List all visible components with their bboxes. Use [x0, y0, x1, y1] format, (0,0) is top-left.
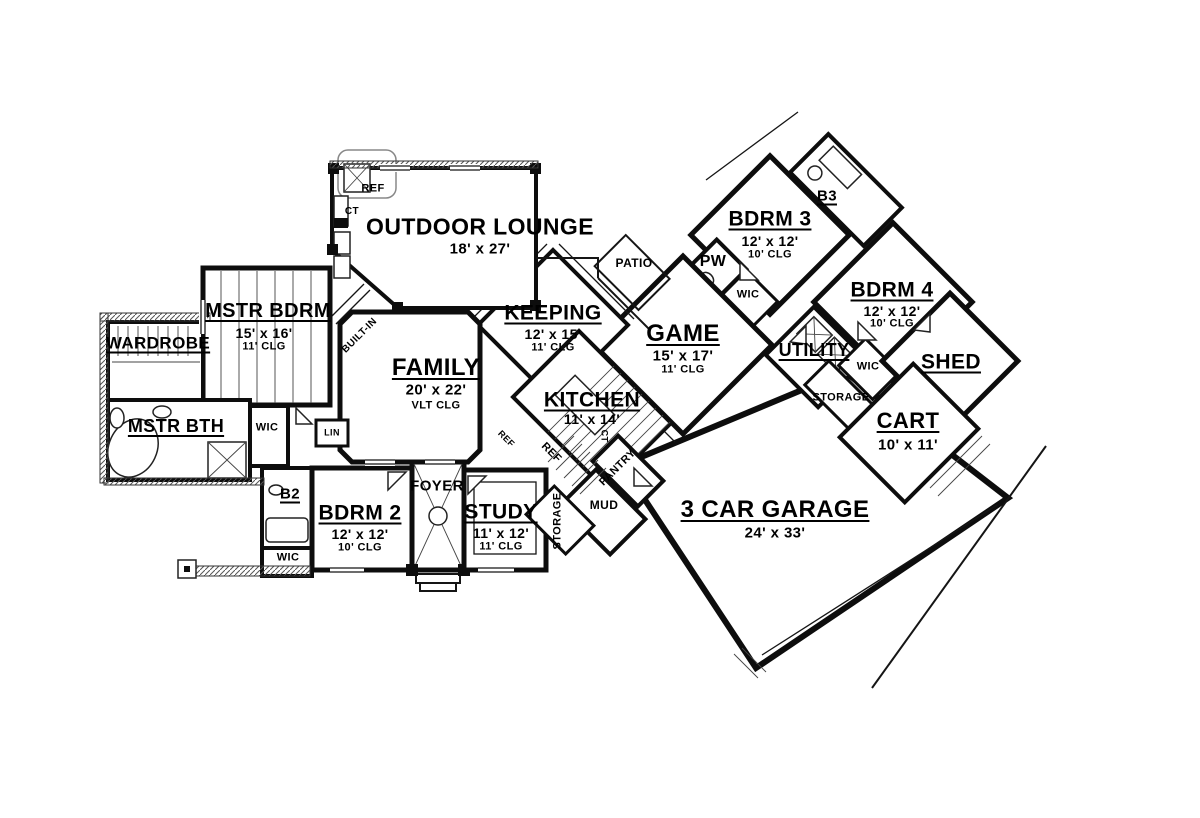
ct-label: CT — [345, 207, 359, 217]
toilet — [110, 408, 124, 428]
room-label-bdrm4: BDRM 4 — [851, 280, 934, 301]
room-label-bdrm3: BDRM 3 — [729, 209, 812, 230]
wic-label: WIC — [737, 290, 760, 301]
room-label-b3: B3 — [817, 189, 837, 204]
front-porch — [196, 566, 310, 576]
room-label-pw: PW — [700, 254, 727, 270]
front-steps — [416, 574, 460, 583]
room-label-outdoor-lounge: OUTDOOR LOUNGE — [366, 216, 594, 239]
room-label-family: FAMILY — [392, 356, 480, 380]
floor-plan: OUTDOOR LOUNGE 18' x 27' REF CT MSTR BDR… — [0, 0, 1200, 818]
ct-label: CT — [600, 430, 609, 443]
storage-label: STORAGE — [553, 493, 564, 550]
room-dims-study: 11' x 12' — [473, 526, 529, 540]
patio-label: PATIO — [616, 257, 653, 269]
wic-label: WIC — [256, 423, 279, 434]
room-label-mstr-bth: MSTR BTH — [128, 417, 224, 435]
room-label-garage: 3 CAR GARAGE — [681, 498, 870, 522]
room-dims-mstr-bdrm: 15' x 16' — [236, 326, 293, 340]
mud-label: MUD — [590, 499, 619, 511]
room-label-mstr-bdrm: MSTR BDRM — [205, 301, 331, 321]
room-label-wardrobe: WARDROBE — [106, 335, 210, 352]
room-clg-game: 11' CLG — [661, 365, 704, 376]
room-dims-bdrm2: 12' x 12' — [332, 527, 389, 541]
storage-label: STORAGE — [813, 393, 870, 404]
room-label-b2: B2 — [280, 487, 300, 502]
room-dims-bdrm3: 12' x 12' — [742, 234, 799, 248]
room-clg-keeping: 11' CLG — [531, 343, 574, 354]
room-clg-bdrm2: 10' CLG — [338, 543, 382, 554]
wic-label: WIC — [857, 362, 880, 373]
room-label-study: STUDY — [464, 502, 537, 523]
ref-label: REF — [361, 184, 384, 195]
room-clg-bdrm3: 10' CLG — [748, 250, 792, 261]
room-clg-study: 11' CLG — [479, 542, 522, 553]
room-clg-mstr-bdrm: 11' CLG — [242, 342, 285, 353]
room-label-kitchen: KITCHEN — [544, 390, 640, 411]
room-label-foyer: FOYER — [410, 479, 464, 494]
room-dims-cart: 10' x 11' — [878, 438, 938, 453]
room-label-keeping: KEEPING — [504, 303, 601, 324]
wic-label: WIC — [277, 553, 300, 564]
room-label-game: GAME — [646, 322, 720, 346]
room-dims-outdoor-lounge: 18' x 27' — [450, 242, 511, 257]
room-clg-bdrm4: 10' CLG — [870, 319, 914, 330]
wic-room — [250, 406, 288, 466]
room-dims-keeping: 12' x 15' — [525, 327, 582, 341]
room-dims-kitchen: 11' x 14' — [564, 412, 620, 426]
room-dims-bdrm4: 12' x 12' — [864, 304, 921, 318]
room-label-cart: CART — [877, 410, 940, 432]
bathtub — [266, 518, 308, 542]
room-label-shed: SHED — [921, 352, 981, 373]
foyer-medallion — [429, 507, 447, 525]
room-dims-garage: 24' x 33' — [745, 526, 806, 541]
room-clg-family: VLT CLG — [411, 401, 460, 412]
lin-label: LIN — [324, 429, 340, 438]
room-label-utility: UTILITY — [779, 341, 850, 359]
room-dims-game: 15' x 17' — [653, 349, 714, 364]
room-label-bdrm2: BDRM 2 — [319, 503, 402, 524]
room-dims-family: 20' x 22' — [406, 383, 467, 398]
